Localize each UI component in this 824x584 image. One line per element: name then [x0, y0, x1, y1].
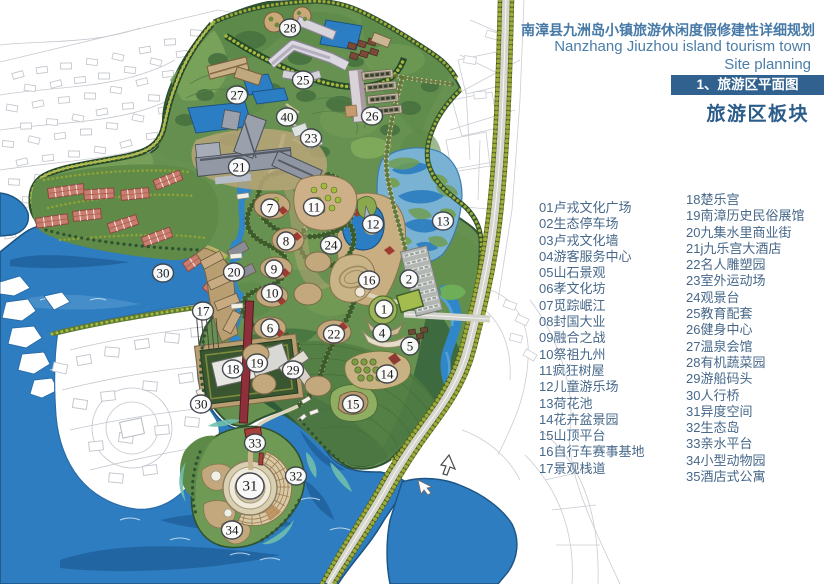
- svg-text:30: 30: [195, 397, 208, 412]
- svg-text:5: 5: [407, 339, 414, 354]
- svg-text:14: 14: [381, 367, 395, 382]
- svg-text:18: 18: [227, 362, 240, 377]
- svg-text:21: 21: [233, 160, 246, 175]
- svg-text:20: 20: [228, 265, 241, 280]
- svg-text:9: 9: [271, 262, 278, 277]
- svg-text:28: 28: [284, 21, 297, 36]
- svg-text:16: 16: [363, 273, 377, 288]
- svg-text:32: 32: [290, 469, 303, 484]
- svg-text:33: 33: [249, 436, 262, 451]
- svg-text:7: 7: [267, 201, 274, 216]
- svg-text:6: 6: [267, 321, 274, 336]
- svg-text:22: 22: [328, 327, 341, 342]
- svg-text:25: 25: [297, 73, 310, 88]
- svg-text:23: 23: [305, 131, 318, 146]
- svg-text:31: 31: [243, 479, 258, 495]
- svg-text:10: 10: [266, 286, 279, 301]
- svg-text:34: 34: [226, 523, 240, 538]
- svg-text:13: 13: [437, 214, 450, 229]
- svg-text:19: 19: [251, 356, 264, 371]
- svg-text:12: 12: [367, 217, 380, 232]
- svg-text:26: 26: [366, 109, 380, 124]
- svg-text:15: 15: [347, 397, 360, 412]
- svg-text:40: 40: [281, 110, 294, 125]
- svg-text:17: 17: [197, 304, 211, 319]
- svg-text:30: 30: [157, 266, 170, 281]
- svg-text:2: 2: [406, 272, 413, 287]
- svg-text:1: 1: [381, 302, 388, 317]
- svg-text:29: 29: [287, 363, 300, 378]
- svg-text:24: 24: [325, 238, 339, 253]
- svg-text:4: 4: [379, 326, 386, 341]
- svg-text:11: 11: [308, 200, 321, 215]
- svg-text:27: 27: [231, 88, 245, 103]
- svg-text:8: 8: [283, 234, 290, 249]
